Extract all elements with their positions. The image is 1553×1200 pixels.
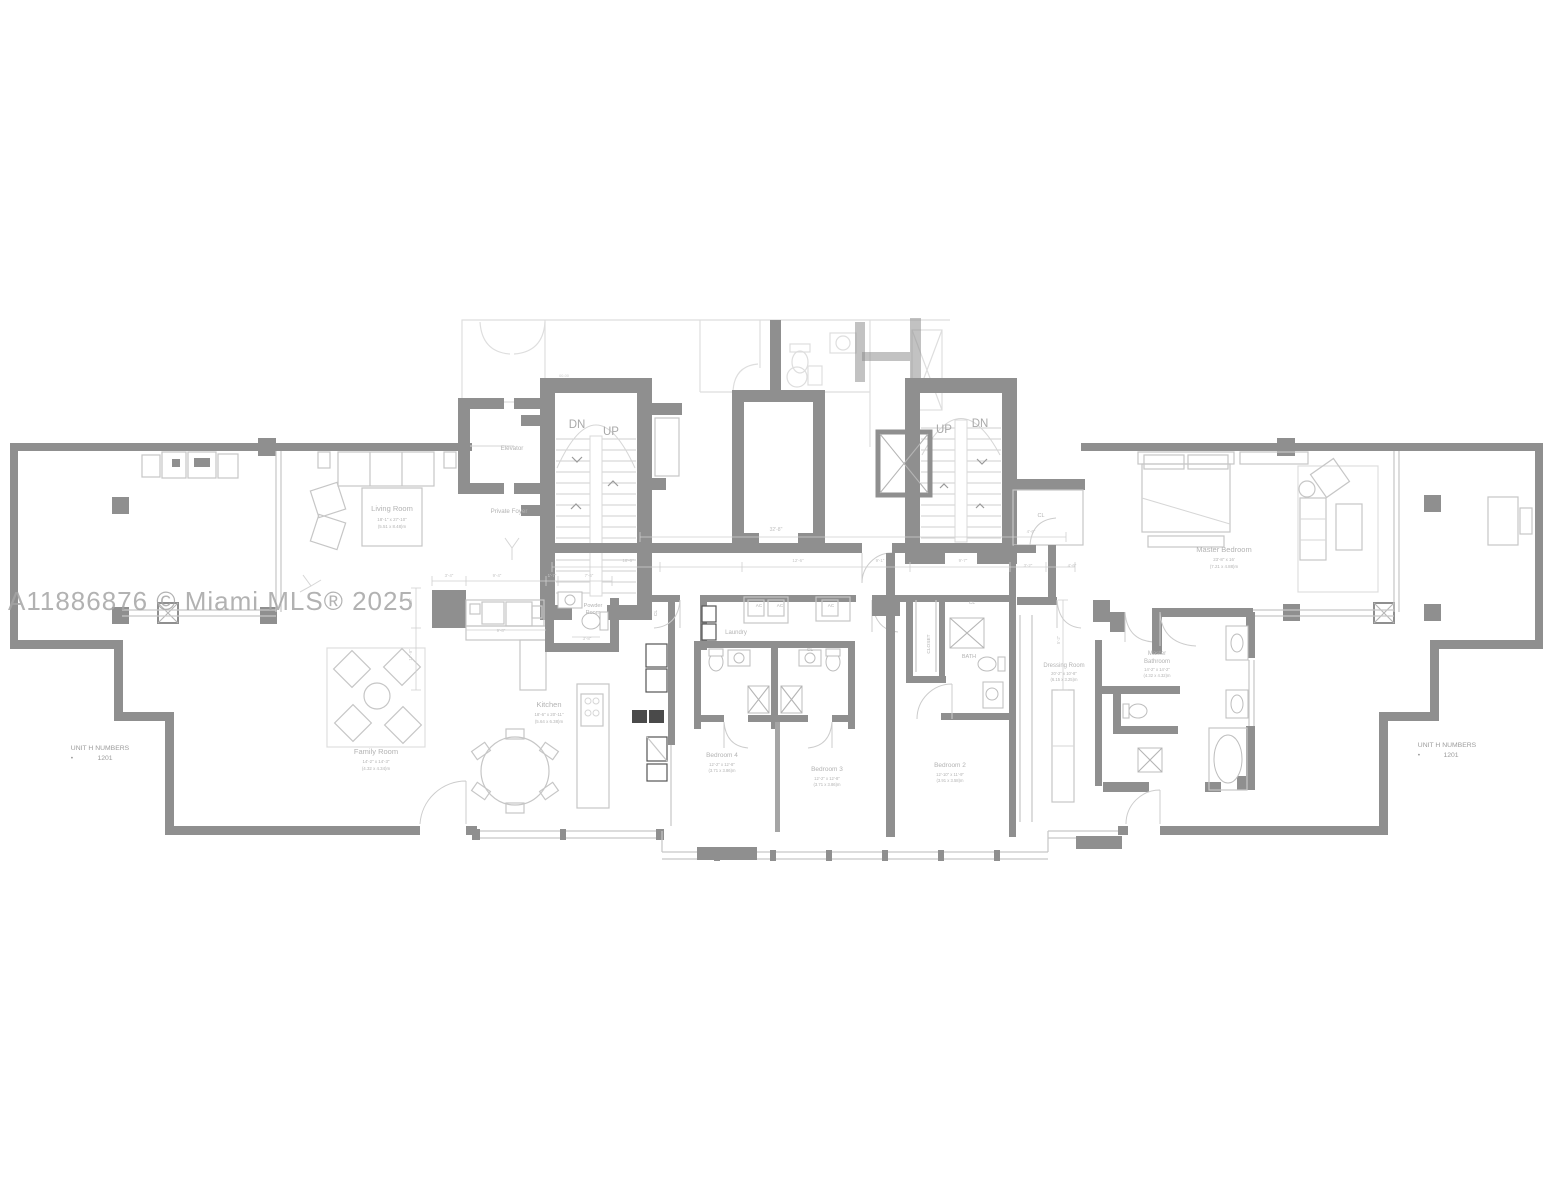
ac-3-label: AC — [828, 603, 835, 608]
dim-9-1: 9'-1" — [876, 558, 885, 563]
bath-label: BATH — [962, 654, 976, 660]
stair-right-up: UP — [936, 424, 952, 436]
dim-4-6b: 4'-6" — [1027, 529, 1036, 534]
dressing-room-label: Dressing Room — [1043, 663, 1084, 669]
dim-9-7: 9'-7" — [959, 558, 968, 563]
dim-3-4: 3'-4" — [445, 573, 454, 578]
bedroom3-dim-m: (3.71 x 3.86)m — [814, 782, 842, 787]
living-room-furniture — [310, 452, 456, 550]
stair-right-dn: DN — [972, 418, 989, 430]
elevator-left — [458, 398, 540, 494]
dim-32-8: 32'-8" — [770, 527, 783, 533]
bedroom3-bedroom2-wall — [886, 553, 895, 837]
unit-left-title: UNIT H NUMBERS — [71, 745, 130, 752]
family-room-furniture — [327, 648, 425, 747]
terrace-furniture-right — [1488, 497, 1532, 545]
unit-left-bullet: • — [71, 755, 74, 762]
bedroom3-label: Bedroom 3 — [811, 766, 843, 773]
shower — [950, 618, 984, 648]
dim-18-6: 18'-6" — [622, 558, 634, 563]
column — [112, 497, 129, 514]
floor-plan-canvas: A11886876 © Miami MLS® 2025 Living Room1… — [0, 0, 1553, 1200]
closet-label: CLOSET — [926, 634, 932, 653]
living-room-dim-m: (5.51 x 8.48)m — [378, 524, 407, 529]
dressing-room-fittings — [1020, 615, 1074, 822]
shared-bathrooms — [694, 641, 855, 748]
bedroom4-label: Bedroom 4 — [706, 752, 738, 759]
window-walls — [122, 451, 1399, 861]
master-bathroom-fixtures — [1123, 626, 1248, 790]
faded-upper-units — [462, 318, 950, 447]
bedroom3-dim-ft: 12'-2" x 12'-8" — [814, 776, 840, 781]
dim-1-7: 1'-7" — [548, 573, 557, 578]
dressing-room-dim-m: (6.15 x 3.25)m — [1051, 677, 1079, 682]
dim-3-8: 3'-8" — [583, 636, 592, 641]
door-tag: 00-00 — [559, 374, 569, 378]
master-bathroom-line2: Bathroom — [1144, 659, 1170, 665]
master-bedroom-dim-m: (7.21 x 4.88)m — [1210, 564, 1239, 569]
master-bathroom-dim-m: (4.32 x 4.32)m — [1144, 673, 1172, 678]
bedroom-block — [640, 553, 1016, 837]
unit-left-number: 1201 — [97, 755, 112, 762]
shower — [1138, 748, 1162, 772]
cl-bedroom2-label: CL — [969, 600, 975, 606]
family-room-dim-m: (4.32 x 4.34)m — [362, 766, 391, 771]
master-bedroom-dim-ft: 23'-8" x 16' — [1213, 557, 1235, 562]
right-wing — [1020, 452, 1532, 824]
master-bedroom-label: Master Bedroom — [1196, 545, 1251, 554]
mls-watermark: A11886876 © Miami MLS® 2025 — [8, 586, 414, 616]
bedroom4-bedroom3-wall — [775, 722, 780, 832]
powder-room-line2: Room — [586, 610, 601, 616]
unit-right-bullet: • — [1418, 752, 1421, 759]
column — [1424, 495, 1441, 512]
dim-8-8: 8'-8" — [408, 597, 413, 606]
dim-12-6: 12'-6" — [792, 558, 804, 563]
ac-1-label: AC — [756, 603, 763, 608]
tv-console — [1240, 452, 1308, 464]
bedroom2-label: Bedroom 2 — [934, 762, 966, 769]
master-sitting-area — [1298, 459, 1378, 592]
cl-kitchen-label: CL — [653, 610, 659, 616]
elevator-label: Elevator — [501, 445, 524, 452]
shower — [781, 686, 802, 713]
crossed-column — [1374, 603, 1394, 623]
stair-left-dn: DN — [569, 419, 586, 431]
kitchen-dim-ft: 18'-6" x 20'-11" — [534, 712, 564, 717]
column — [1424, 604, 1441, 621]
master-hall — [1093, 600, 1153, 642]
column — [1277, 438, 1295, 456]
living-room-label: Living Room — [371, 504, 413, 513]
terrace-door-right — [1126, 790, 1160, 824]
dim-9-4: 9'-4" — [493, 573, 502, 578]
kitchen-dim-m: (5.64 x 6.38)m — [535, 719, 564, 724]
cl-bath-block-label: CL — [807, 647, 813, 653]
ac-2-label: AC — [777, 603, 784, 608]
stair-left-up: UP — [603, 426, 619, 438]
unit-right-number: 1201 — [1443, 752, 1458, 759]
powder-room-line1: Powder — [584, 603, 603, 609]
living-room-dim-ft: 18'-1" x 27'-10" — [377, 517, 407, 522]
terrace-outdoor-kitchen — [142, 452, 238, 478]
wall-chunk — [872, 598, 900, 616]
bedroom2-closet-bath — [906, 595, 1009, 720]
stair-right — [905, 378, 1017, 564]
bedroom2-dressing-wall — [1009, 553, 1016, 837]
unit-right-title: UNIT H NUMBERS — [1418, 742, 1477, 749]
master-bathroom-dim-ft: 14'-2" x 14'-2" — [1144, 667, 1170, 672]
bedroom2-dim-m: (3.91 x 3.58)m — [937, 778, 965, 783]
dim-4-6a: 4'-6" — [1068, 563, 1077, 568]
floor-plan-page: A11886876 © Miami MLS® 2025 Living Room1… — [0, 0, 1553, 1200]
shower — [748, 686, 769, 713]
service-shaft — [732, 320, 825, 544]
dressing-room-dim-ft: 20'-2" x 10'-8" — [1051, 671, 1077, 676]
bedroom4-dim-ft: 12'-2" x 12'-8" — [709, 762, 735, 767]
master-bed — [1138, 452, 1234, 547]
master-bathroom-line1: Master — [1148, 651, 1166, 657]
bedroom2-dim-ft: 12'-10" x 11'-9" — [936, 772, 964, 777]
column — [258, 438, 276, 456]
kitchen-label: Kitchen — [536, 700, 561, 709]
dim-3-2: 3'-2" — [1024, 563, 1033, 568]
family-room-terrace-door — [420, 781, 466, 824]
dim-17-9: 17'-9" — [408, 649, 413, 661]
dining-table — [472, 729, 559, 813]
dim-7-6: 7'-6" — [585, 573, 594, 578]
bedroom4-dim-m: (3.71 x 3.86)m — [709, 768, 737, 773]
laundry-label: Laundry — [725, 630, 747, 636]
private-foyer-label: Private Foyer — [491, 508, 528, 515]
cl-hall-label: CL — [1037, 513, 1044, 519]
dim-9-8: 9'-8" — [497, 628, 506, 633]
family-room-dim-ft: 14'-2" x 14'-3" — [362, 759, 389, 764]
core — [458, 320, 1085, 628]
family-room-label: Family Room — [354, 747, 398, 756]
dim-5-2: 5'-2" — [1056, 635, 1061, 644]
bathtub — [1214, 735, 1242, 783]
column — [1283, 604, 1300, 621]
stair-left — [521, 378, 682, 620]
